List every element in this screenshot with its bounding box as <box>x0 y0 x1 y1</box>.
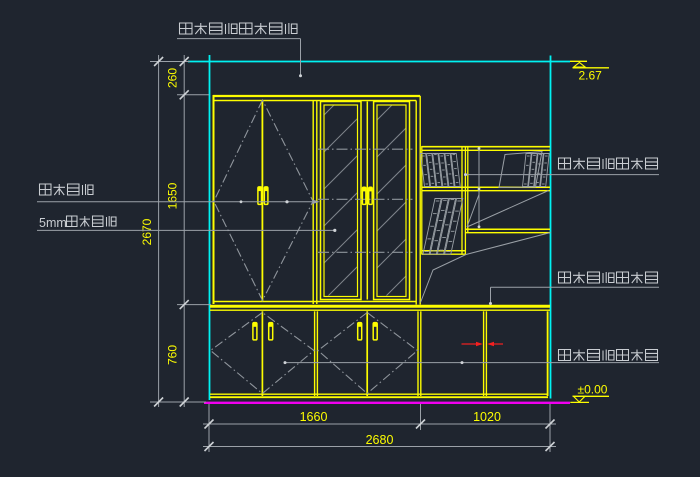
svg-text:760: 760 <box>166 345 180 365</box>
svg-text:5mm: 5mm <box>39 216 67 230</box>
svg-text:260: 260 <box>166 68 180 88</box>
svg-text:±0.00: ±0.00 <box>578 382 608 396</box>
svg-text:1660: 1660 <box>300 410 328 424</box>
svg-text:1650: 1650 <box>166 182 180 209</box>
svg-text:2680: 2680 <box>366 433 394 447</box>
svg-text:1020: 1020 <box>473 410 501 424</box>
svg-text:2670: 2670 <box>140 218 154 245</box>
svg-text:2.67: 2.67 <box>579 69 603 83</box>
